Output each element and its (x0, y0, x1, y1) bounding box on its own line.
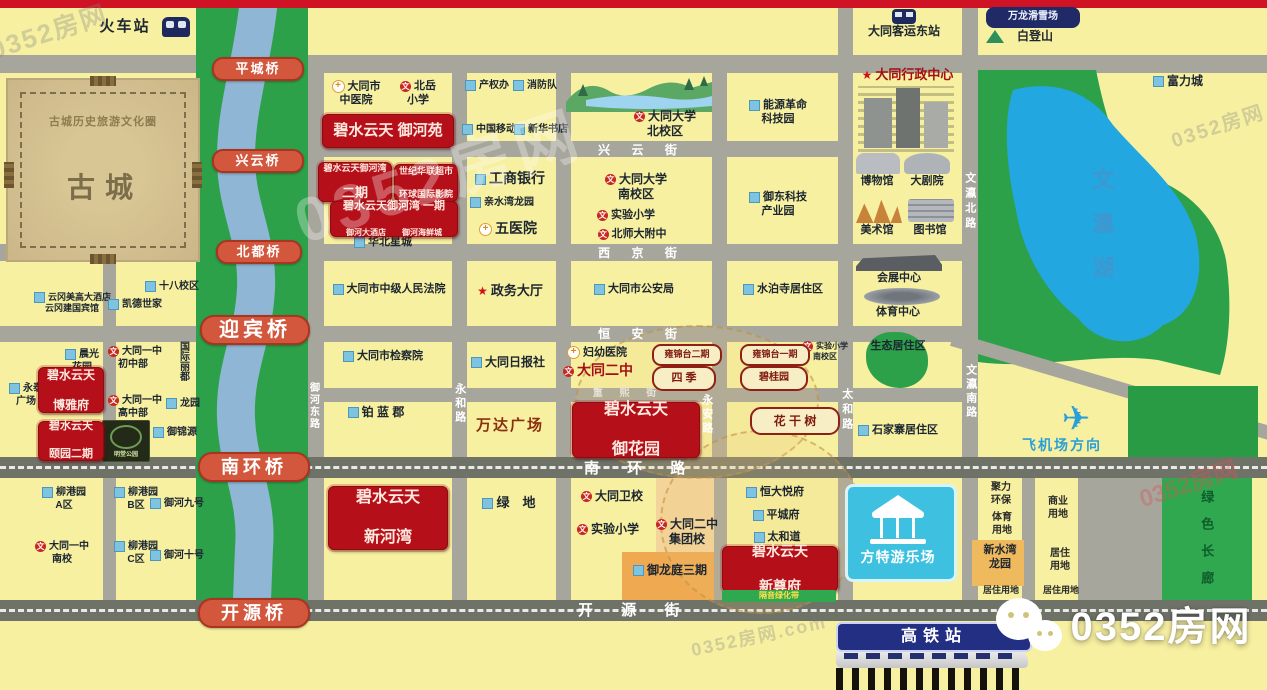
yuhe9-label: 御河九号 (150, 498, 202, 511)
shijihualian-red-box-text: 环球国际影院 (399, 189, 453, 200)
wanda-plaza-label: 万达广场 (466, 417, 554, 436)
chanquan-label: 产权办 (464, 80, 510, 93)
xinzunfu-red-box-text: 碧水云天 (752, 543, 808, 561)
wechat-bubble-small (1028, 620, 1062, 651)
bld-icon (65, 349, 76, 360)
liugang-a-label: 柳港园A区 (38, 487, 90, 512)
procuratorate-label-text: 大同市检察院 (357, 350, 423, 362)
yuhewan2-red-box-text: 二期 (342, 185, 368, 201)
guojilidu-label-text: 国际丽都 (178, 341, 189, 381)
nanhuan-bridge: 南环桥 (198, 452, 310, 482)
yizhong-junior-label-text: 初中部 (118, 359, 148, 370)
geyin-greenbelt-label-text: 隔音绿化带 (759, 591, 799, 601)
yongjintai1-badge-text: 雍锦台一期 (752, 349, 797, 360)
kaiyuan-bridge-text: 开源桥 (221, 602, 287, 625)
bus-icon (892, 9, 916, 24)
yonghe-road-label: 永和路 (452, 383, 466, 425)
xinhewan-red-box-text: 碧水云天 (356, 488, 420, 508)
bld-icon (42, 487, 53, 498)
yudong-park-label-text: 御东科技 (763, 191, 807, 203)
bld-icon (746, 487, 757, 498)
no5-hospital-label: 五医院 (474, 220, 542, 238)
museum-label-text: 博物馆 (861, 175, 894, 187)
city-gate-icon (90, 254, 116, 264)
yulongting-label-text: 御龙庭三期 (647, 563, 707, 577)
shiyan-school2-label: 实验小学 (574, 522, 642, 537)
boyafu-red-box-text: 博雅府 (53, 398, 89, 413)
zhengwu-hall-label: 政务大厅 (466, 283, 554, 299)
icbc-label-text: 工商银行 (489, 170, 545, 186)
nanhuan-road-label: 南 环 路 (584, 460, 694, 479)
guojilidu-label: 国际丽都 (176, 341, 189, 381)
bld-icon (166, 398, 177, 409)
icbc-label: 工商银行 (468, 170, 552, 188)
city-gate-icon (4, 162, 14, 188)
bld-icon (114, 541, 125, 552)
beishida-label-text: 北师大附中 (612, 228, 667, 240)
yongjintai1-badge: 雍锦台一期 (740, 344, 810, 366)
chanquan-label-text: 产权办 (479, 80, 509, 91)
court-label-text: 大同市中级人民法院 (347, 283, 446, 295)
road-wenying (962, 8, 978, 600)
tiyu-landuse-label-text: 体育 (992, 512, 1012, 523)
old-city-label: 古城 (55, 170, 155, 205)
xinshuiwan-label-text: 新水湾 (984, 544, 1017, 556)
government-buildings-image (858, 86, 954, 152)
art-gallery-label-text: 美术馆 (861, 224, 894, 236)
liugang-a-label-text: A区 (55, 500, 72, 511)
bld-icon (471, 357, 482, 368)
cross-icon (567, 346, 580, 359)
train-window (178, 21, 186, 28)
nengyuan-park-label: 能源革命科技园 (740, 99, 816, 127)
yizhong-south-label-text: 南校 (52, 554, 72, 565)
shiyan-south-label-text: 实验小学 (816, 342, 848, 351)
bld-icon (594, 284, 605, 295)
cross-icon (332, 80, 345, 93)
beiyue-school-label: 北岳小学 (396, 80, 440, 108)
theatre-label-text: 大剧院 (911, 175, 944, 187)
admin-center-label: 大同行政中心 (850, 67, 965, 83)
school-icon (400, 81, 411, 92)
tiyu-landuse-label: 体育用地 (982, 512, 1022, 537)
bld-icon (108, 299, 119, 310)
biguiyuan-badge-text: 碧桂园 (759, 372, 789, 385)
yuhewan1-red-box-text: 碧水云天御河湾 一期 (343, 200, 445, 214)
bld-icon (145, 281, 156, 292)
school-icon (656, 519, 667, 530)
juli-landuse-label-text: 环保 (991, 495, 1011, 506)
yingbin-bridge-text: 迎宾桥 (219, 318, 291, 343)
sports-center-image (864, 288, 940, 305)
fuyou-hospital-label: 妇幼医院 (560, 346, 634, 360)
juli-landuse-label: 聚力环保 (980, 482, 1022, 507)
star-icon (862, 68, 873, 83)
fuyou-hospital-label-text: 妇幼医院 (583, 346, 627, 358)
dtu-south-label-text: 南校区 (618, 187, 654, 201)
baideng-mountain-label-text: 白登山 (1017, 29, 1053, 43)
wechat-eye (1023, 612, 1029, 618)
yuhe10-label-text: 御河十号 (164, 550, 204, 561)
zhongyi-hospital-label-text: 大同市 (348, 80, 381, 92)
road-yonghe (452, 55, 467, 600)
fulicheng-label-text: 富力城 (1167, 74, 1203, 88)
yujinyuan-label-text: 御锦源 (167, 427, 197, 438)
liugang-c-label-text: C区 (127, 554, 144, 565)
wenying-lake-label: 文瀛湖 (1088, 168, 1116, 300)
zhengwu-hall-label-text: 政务大厅 (491, 283, 543, 298)
zhongyi-hospital-label-text: 中医院 (340, 94, 373, 106)
yuhewan1-red-box-text: 御河大酒店 御河海鲜城 (346, 228, 442, 238)
plane-icon: ✈ (1046, 398, 1106, 441)
beiyue-school-label-text: 小学 (407, 94, 429, 106)
carousel-post (912, 518, 915, 538)
yungang-hotels-label-text: 云冈建国宾馆 (45, 303, 99, 313)
yuhedong-road-label: 御河东路 (306, 382, 319, 430)
bld-icon (348, 407, 359, 418)
hengda-label: 恒大悦府 (742, 486, 808, 500)
eco-district-label-text: 生态居住区 (871, 340, 926, 352)
sports-center-label: 体育中心 (862, 306, 934, 320)
yungang-hotels-label: 云冈美高大酒店云冈建国宾馆 (34, 292, 110, 315)
erzhong-label: 大同二中 (556, 362, 640, 380)
carousel-base (870, 539, 926, 544)
liugang-b-label-text: 柳港园 (128, 487, 158, 498)
biguiyuan-badge: 碧桂园 (740, 366, 808, 391)
museum-image (856, 153, 900, 174)
xingyun-bridge: 兴云桥 (212, 149, 304, 173)
yizhong-south-label: 大同一中南校 (34, 541, 90, 566)
beidu-bridge-text: 北都桥 (236, 244, 281, 260)
bld-icon (743, 284, 754, 295)
shijihualian-red-box-text: 世纪华联超市 (399, 166, 453, 177)
beiyue-school-label-text: 北岳 (414, 80, 436, 92)
shiba-campus-label-text: 十八校区 (159, 281, 199, 292)
yizhong-junior-label: 大同一中初中部 (108, 346, 158, 371)
nengyuan-park-label-text: 科技园 (762, 113, 795, 125)
beidu-bridge: 北都桥 (216, 240, 302, 264)
daily-press-label-text: 大同日报社 (485, 355, 545, 369)
school-icon (108, 346, 119, 357)
bus-station-label-text: 大同客运东站 (868, 24, 940, 38)
mingtang-park-image: 明堂公园 (102, 420, 150, 462)
yuhuayuan-red-box-text: 御花园 (612, 440, 660, 460)
school-icon (577, 524, 588, 535)
yuheyuan-red-box: 碧水云天 御河苑 (322, 114, 454, 148)
erzhong-jituan-label: 大同二中集团校 (648, 517, 726, 547)
art-gallery-image (856, 197, 902, 223)
siji-badge: 四 季 (652, 366, 716, 391)
eco-district-label: 生态居住区 (858, 340, 938, 354)
wenying-north-road-label-text: 文瀛北路 (964, 172, 976, 232)
top-red-border (0, 0, 1267, 8)
weixiao-label: 大同卫校 (578, 489, 646, 504)
kaiyuan-bridge: 开源桥 (198, 598, 310, 628)
mingtang-park-image-text: 明堂公园 (114, 452, 138, 460)
yizhong-south-label-text: 大同一中 (49, 541, 89, 552)
bld-icon (754, 532, 765, 543)
bld-icon (462, 124, 473, 135)
dtu-north-label: 大同大学北校区 (628, 109, 702, 139)
yongjintai2-badge-text: 雍锦台二期 (664, 349, 709, 360)
wenying-south-road-label-text: 文瀛南路 (965, 364, 977, 420)
juzhu-landuse-label-2: 居住用地 (974, 585, 1028, 596)
bld-icon (749, 192, 760, 203)
lvdi-label: 绿 地 (472, 495, 546, 511)
yonghe-road-label-text: 永和路 (454, 383, 466, 425)
school-icon (108, 395, 119, 406)
kaide-label-text: 凯德世家 (122, 299, 162, 310)
daily-press-label: 大同日报社 (468, 355, 548, 370)
school-icon (598, 229, 609, 240)
zhongxi-street-label: 重 熙 街 (590, 388, 666, 401)
library-label: 图书馆 (906, 224, 954, 238)
yuhewan1-red-box: 碧水云天御河湾 一期御河大酒店 御河海鲜城 (330, 201, 458, 237)
bus-window (895, 12, 902, 17)
wechat-eye (1048, 631, 1053, 636)
yuhewan2-red-box: 碧水云天御河湾二期 (318, 162, 392, 202)
yudong-park-label: 御东科技产业园 (740, 191, 816, 219)
carousel-icon (872, 495, 924, 547)
bld-icon (482, 498, 493, 509)
bld-icon (150, 550, 161, 561)
xinhua-bookstore-label-text: 新华书店 (528, 124, 568, 135)
wanlong-ski-badge-text: 万龙滑雪场 (1008, 11, 1058, 24)
chenguang-label-text: 晨光 (79, 349, 99, 360)
carousel-post (880, 518, 883, 538)
qinshuiwan-label: 亲水湾龙园 (466, 197, 538, 210)
bld-icon (9, 383, 20, 394)
dtu-north-label-text: 大同大学 (648, 109, 696, 123)
bld-icon (34, 292, 45, 303)
longyuan-label-text: 龙园 (180, 398, 200, 409)
theatre-image (904, 153, 950, 174)
fulicheng-label: 富力城 (1148, 74, 1208, 89)
shiyan-school1-label-text: 实验小学 (611, 209, 655, 221)
xijing-street-label-text: 西 京 街 (598, 246, 686, 260)
plane-icon-text: ✈ (1062, 400, 1091, 438)
hsr-train-windows (844, 653, 1020, 659)
green-corridor-label-text: 绿色长廊 (1199, 490, 1214, 598)
shijihualian-red-box: 世纪华联超市环球国际影院 (394, 164, 458, 202)
hengda-label-text: 恒大悦府 (760, 486, 804, 498)
qinshuiwan-label-text: 亲水湾龙园 (484, 197, 534, 208)
beishida-label: 北师大附中 (594, 228, 670, 242)
huaganshu-badge: 花 干 树 (750, 407, 840, 435)
hengan-street-label: 恒 安 街 (592, 327, 692, 342)
wanda-plaza-label-text: 万达广场 (476, 417, 544, 434)
train-window (166, 21, 174, 28)
yulongting-label: 御龙庭三期 (628, 563, 712, 578)
river (196, 8, 308, 600)
expo-center-label: 会展中心 (864, 272, 934, 286)
yongan-road-label: 永安路 (699, 394, 713, 436)
school-icon (605, 174, 616, 185)
pingcheng-bridge: 平城桥 (212, 57, 304, 81)
train-icon (162, 17, 190, 37)
yizhong-senior-label-text: 大同一中 (122, 395, 162, 406)
xinshuiwan-label-text: 龙园 (989, 558, 1011, 570)
shiba-campus-label: 十八校区 (144, 281, 200, 294)
train-station-label: 火车站 (86, 18, 164, 37)
shuiposi-label: 水泊寺居住区 (736, 283, 830, 297)
mountain-icon (986, 30, 1004, 43)
yuhe10-label: 御河十号 (150, 550, 202, 563)
wechat-eye (1008, 612, 1014, 618)
road-hengan-street (0, 326, 965, 342)
hsr-station-sign-text: 高铁站 (901, 627, 967, 647)
dtu-south-label-text: 大同大学 (619, 172, 667, 186)
green-square-area (1128, 386, 1258, 457)
yizhong-junior-label-text: 大同一中 (122, 346, 162, 357)
bus-station-label: 大同客运东站 (844, 24, 964, 39)
liugang-a-label-text: 柳港园 (56, 487, 86, 498)
huaganshu-badge-text: 花 干 树 (774, 414, 817, 429)
xinhua-bookstore-label: 新华书店 (514, 124, 566, 137)
china-mobile-label: 中国移动 (462, 124, 514, 137)
fangte-label-text: 方特游乐场 (861, 549, 936, 565)
yuhuayuan-red-box: 碧水云天御花园 (572, 402, 700, 458)
bld-icon (858, 425, 869, 436)
art-gallery-label: 美术馆 (854, 224, 900, 238)
longyuan-label: 龙园 (166, 398, 198, 411)
road-v-mid (556, 55, 571, 600)
bld-icon (150, 498, 161, 509)
boyafu-red-box: 碧水云天博雅府 (38, 367, 104, 413)
brand-logo-text: 0352房网 (1058, 602, 1264, 652)
wenying-lake-label-text: 文瀛湖 (1090, 168, 1115, 300)
admin-center-label-text: 大同行政中心 (875, 67, 953, 82)
juzhu-landuse-label-1: 居住用地 (1040, 548, 1080, 573)
fire-brigade-label: 消防队 (512, 80, 558, 93)
nengyuan-park-label-text: 能源革命 (763, 99, 807, 111)
expo-center-label-text: 会展中心 (877, 272, 921, 284)
campus-landscape-art (566, 66, 712, 112)
pingcheng-bridge-text: 平城桥 (235, 61, 280, 77)
weixiao-label-text: 大同卫校 (595, 489, 643, 503)
theatre-label: 大剧院 (904, 175, 950, 189)
old-city-ring-label: 古城历史旅游文化圈 (28, 116, 178, 130)
city-gate-icon (192, 162, 202, 188)
bld-icon (343, 351, 354, 362)
train-station-label-text: 火车站 (99, 18, 150, 35)
bld-icon (114, 487, 125, 498)
bld-icon (514, 124, 525, 135)
carousel-roof (874, 495, 922, 511)
wechat-eye (1037, 631, 1042, 636)
kaiyuan-street-label: 开 源 街 (578, 602, 688, 621)
bld-icon (513, 80, 524, 91)
shijiazhai-label-text: 石家寨居住区 (872, 424, 938, 436)
yongjintai2-badge: 雍锦台二期 (652, 344, 722, 366)
city-map: 火车站大同客运东站万龙滑雪场白登山富力城古城历史旅游文化圈古城云冈美高大酒店云冈… (0, 0, 1267, 690)
fangte-park-box (845, 484, 957, 582)
wenying-north-road-label: 文瀛北路 (962, 172, 976, 232)
bld-icon (354, 237, 365, 248)
lvdi-label-text: 绿 地 (496, 495, 535, 510)
no5-hospital-label-text: 五医院 (495, 220, 537, 236)
shiyan-school1-label: 实验小学 (594, 209, 658, 223)
juli-landuse-label-text: 聚力 (991, 482, 1011, 493)
yiyuan-red-box: 碧水云天颐园二期 (38, 421, 104, 461)
star-icon (477, 284, 488, 299)
sports-center-label-text: 体育中心 (876, 306, 920, 318)
shangye-landuse-label-text: 商业 (1048, 496, 1068, 507)
xinhewan-red-box: 碧水云天新河湾 (328, 486, 448, 550)
school-icon (597, 210, 608, 221)
erzhong-jituan-label-text: 集团校 (669, 532, 705, 546)
yiyuan-red-box-text: 颐园二期 (49, 448, 93, 462)
road-v-landuse2 (1078, 478, 1162, 600)
dtu-south-label: 大同大学南校区 (598, 172, 674, 202)
police-bureau-label: 大同市公安局 (586, 283, 682, 297)
pingchengfu-label-text: 平城府 (767, 509, 800, 521)
school-icon (35, 541, 46, 552)
shangye-landuse-label: 商业用地 (1038, 496, 1078, 521)
liugang-b-label-text: B区 (127, 500, 144, 511)
shiyan-school2-label-text: 实验小学 (591, 522, 639, 536)
bld-icon (470, 197, 481, 208)
kaide-label: 凯德世家 (106, 299, 164, 312)
china-mobile-label-text: 中国移动 (476, 124, 516, 135)
xinhewan-red-box-text: 新河湾 (364, 528, 412, 548)
pingchengfu-label: 平城府 (746, 509, 806, 523)
bld-icon (749, 100, 760, 111)
bld-icon (153, 427, 164, 438)
fangte-label: 方特游乐场 (847, 549, 949, 567)
bld-icon (633, 565, 644, 576)
shijiazhai-label: 石家寨居住区 (850, 424, 946, 438)
boyafu-red-box-text: 碧水云天 (47, 368, 95, 383)
erzhong-label-text: 大同二中 (577, 362, 633, 378)
kaiyuan-street-label-text: 开 源 街 (578, 602, 691, 619)
fire-brigade-label-text: 消防队 (527, 80, 557, 91)
juzhu-landuse-label-2-text: 居住用地 (983, 585, 1019, 595)
dtu-north-label-text: 北校区 (647, 124, 683, 138)
yingbin-bridge: 迎宾桥 (200, 315, 310, 345)
yizhong-senior-label-text: 高中部 (118, 408, 148, 419)
shuiposi-label-text: 水泊寺居住区 (757, 283, 823, 295)
cross-icon (479, 223, 492, 236)
erzhong-jituan-label-text: 大同二中 (670, 517, 718, 531)
bld-icon (1153, 76, 1164, 87)
yuheyuan-red-box-text: 碧水云天 御河苑 (333, 122, 442, 141)
juzhu-landuse-label-1-text: 用地 (1050, 561, 1070, 572)
library-label-text: 图书馆 (914, 224, 947, 236)
taihedao-label-text: 太和道 (768, 531, 801, 543)
wenying-south-road-label: 文瀛南路 (963, 364, 977, 420)
yujinyuan-label: 御锦源 (152, 427, 198, 440)
geyin-greenbelt-label: 隔音绿化带 (722, 590, 836, 602)
hengan-street-label-text: 恒 安 街 (598, 327, 686, 341)
brand-logo-text-text: 0352房网 (1071, 605, 1252, 649)
bld-icon (475, 174, 486, 185)
yongan-road-label-text: 永安路 (701, 394, 713, 436)
huabei-label: 华北星城 (350, 236, 416, 250)
green-corridor-label: 绿色长廊 (1198, 490, 1214, 598)
museum-label: 博物馆 (854, 175, 900, 189)
nanhuan-bridge-text: 南环桥 (221, 456, 287, 479)
xinshuiwan-label: 新水湾龙园 (974, 544, 1026, 572)
yizhong-senior-label: 大同一中高中部 (108, 395, 158, 420)
xingyun-street-label-text: 兴 云 街 (598, 143, 686, 157)
bolanjun-label-text: 铂 蓝 郡 (362, 405, 405, 419)
yiyuan-red-box-text: 碧水云天 (49, 420, 93, 434)
library-image (908, 199, 954, 222)
xingyun-bridge-text: 兴云桥 (235, 153, 280, 169)
shangye-landuse-label-text: 用地 (1048, 509, 1068, 520)
police-bureau-label-text: 大同市公安局 (608, 283, 674, 295)
